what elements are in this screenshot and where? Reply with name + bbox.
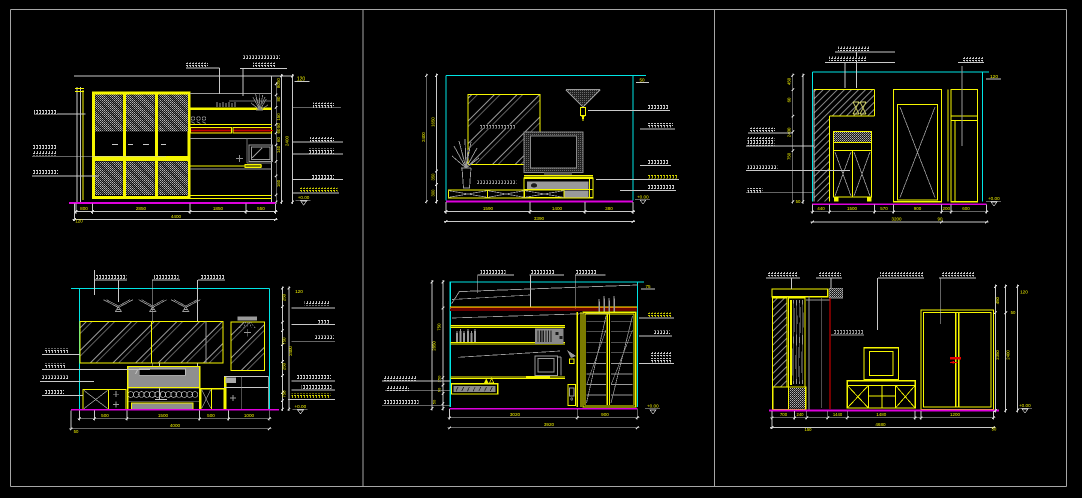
svg-text:+0.00: +0.00 [637,195,649,200]
svg-text:1000: 1000 [244,413,255,418]
svg-text:1400: 1400 [552,206,563,211]
svg-text:750: 750 [787,152,792,160]
svg-text:1200: 1200 [950,412,961,417]
svg-text:60: 60 [276,128,281,133]
svg-text:50: 50 [1011,310,1016,315]
svg-text:+0.00: +0.00 [988,196,1000,201]
svg-text:450: 450 [995,297,1000,305]
svg-text:500: 500 [101,413,109,418]
svg-text:1650: 1650 [430,117,435,127]
svg-text:60: 60 [787,97,792,102]
svg-text:900: 900 [601,412,609,417]
svg-text:2350: 2350 [995,350,1000,360]
svg-text:50: 50 [276,123,281,128]
svg-text:50: 50 [74,429,79,434]
svg-text:4680: 4680 [875,422,886,427]
svg-text:140: 140 [276,145,281,153]
svg-text:800: 800 [80,206,88,211]
svg-text:900: 900 [914,206,922,211]
svg-text:160: 160 [276,179,281,187]
svg-text:1850: 1850 [213,206,224,211]
svg-text:50: 50 [432,399,437,404]
svg-text:700: 700 [780,412,788,417]
svg-text:250: 250 [281,293,286,301]
svg-text:75: 75 [645,284,651,289]
svg-text:120: 120 [75,219,83,224]
svg-text:750: 750 [436,323,441,331]
svg-text:200: 200 [942,206,950,211]
svg-text:300: 300 [430,189,435,197]
svg-text:3390: 3390 [534,216,545,221]
svg-text:+0.00: +0.00 [1019,403,1031,408]
svg-text:1500: 1500 [158,413,169,418]
svg-text:2850: 2850 [432,341,437,351]
svg-text:1440: 1440 [833,412,843,417]
svg-text:250: 250 [281,362,286,370]
svg-text:380: 380 [605,206,613,211]
svg-text:2400: 2400 [421,132,426,142]
svg-text:150: 150 [276,113,281,121]
svg-text:570: 570 [880,206,888,211]
svg-text:2400: 2400 [285,135,290,146]
svg-text:4400: 4400 [171,214,182,219]
svg-text:4000: 4000 [170,423,181,428]
svg-text:+0.00: +0.00 [647,404,659,409]
svg-text:+0.00: +0.00 [298,195,310,200]
svg-text:+0.00: +0.00 [295,404,307,409]
svg-text:60: 60 [436,387,441,392]
svg-text:750: 750 [281,390,286,398]
svg-text:450: 450 [787,77,792,85]
svg-text:750: 750 [281,337,286,345]
svg-text:50: 50 [639,78,645,83]
svg-text:150: 150 [805,427,813,432]
svg-text:50: 50 [992,427,997,432]
svg-text:600: 600 [962,206,970,211]
svg-text:3200: 3200 [891,217,902,222]
svg-text:1500: 1500 [847,206,858,211]
svg-text:3020: 3020 [510,412,521,417]
svg-text:50: 50 [276,78,281,83]
svg-text:2400: 2400 [288,346,293,356]
svg-text:2850: 2850 [136,206,147,211]
svg-text:120: 120 [295,289,303,294]
svg-text:2400: 2400 [787,127,792,137]
svg-text:80: 80 [276,96,281,101]
svg-text:90: 90 [937,217,943,222]
svg-text:50: 50 [796,199,801,204]
svg-text:440: 440 [817,206,825,211]
svg-text:2400: 2400 [1006,350,1011,360]
svg-text:60: 60 [276,137,281,142]
svg-text:1480: 1480 [876,412,887,417]
svg-text:550: 550 [257,206,265,211]
svg-text:120: 120 [1020,290,1028,295]
svg-text:500: 500 [207,413,215,418]
svg-text:350: 350 [430,173,435,181]
svg-text:240: 240 [797,412,805,417]
svg-text:1590: 1590 [483,206,494,211]
svg-text:3920: 3920 [544,422,555,427]
